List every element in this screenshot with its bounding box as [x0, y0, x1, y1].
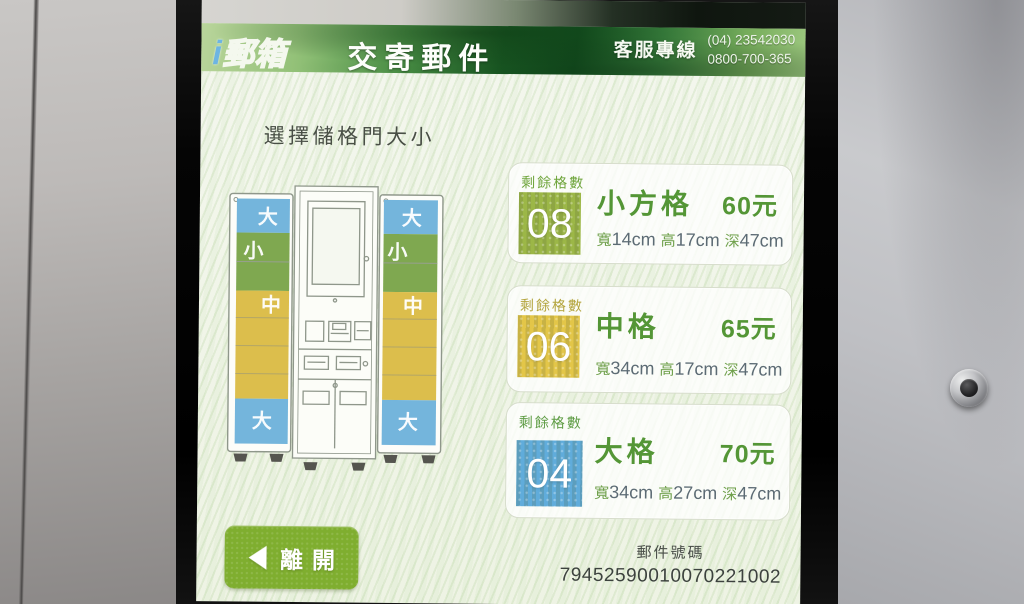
cabinet-left-panel — [0, 0, 178, 604]
dim-height-value: 17cm — [676, 230, 720, 250]
dim-height-value: 27cm — [673, 483, 717, 503]
mail-number-label: 郵件號碼 — [546, 540, 796, 563]
option-dimensions: 寬14cm高17cm深47cm — [597, 229, 789, 252]
hotline-label: 客服專線 — [613, 35, 697, 63]
band-label-large-bottom: 大 — [398, 411, 418, 434]
dim-width-value: 34cm — [610, 358, 654, 378]
option-title-row: 小方格 60元 — [597, 182, 778, 224]
back-arrow-icon — [248, 545, 266, 569]
panel-seam — [18, 0, 39, 604]
locker-diagram: 大 小 中 大 — [225, 181, 446, 473]
dim-depth-label: 深 — [723, 362, 738, 379]
dim-width-label: 寬 — [594, 485, 609, 502]
kiosk-photo: i郵箱 交寄郵件 客服專線 (04) 23542030 0800-700-365… — [0, 0, 1024, 604]
band-label-large-top: 大 — [402, 207, 422, 230]
page-title: 交寄郵件 — [347, 33, 495, 78]
option-name: 小方格 — [597, 182, 693, 223]
option-price: 70元 — [720, 434, 776, 471]
dim-height-value: 17cm — [674, 359, 718, 379]
size-option-large[interactable]: 剩餘格數 04 大格 70元 寬34cm高27cm深47cm — [505, 402, 791, 521]
option-dimensions: 寬34cm高17cm深47cm — [595, 358, 787, 381]
keyhole — [960, 379, 978, 397]
logo-text: 郵箱 — [223, 36, 287, 72]
dim-depth-value: 47cm — [740, 230, 784, 250]
dim-height-label: 高 — [661, 233, 676, 250]
dim-height-label: 高 — [658, 486, 673, 503]
size-option-medium[interactable]: 剩餘格數 06 中格 65元 寬34cm高17cm深47cm — [506, 285, 792, 395]
touch-screen: i郵箱 交寄郵件 客服專線 (04) 23542030 0800-700-365… — [196, 0, 806, 604]
mail-number-value: 79452590010070221002 — [545, 564, 795, 588]
cabinet-lock — [950, 369, 988, 407]
dim-width-label: 寬 — [595, 361, 610, 378]
dim-depth-value: 47cm — [738, 359, 782, 379]
dim-width-label: 寬 — [597, 232, 612, 249]
band-label-medium: 中 — [261, 293, 281, 317]
band-label-small: 小 — [243, 240, 263, 263]
dim-height-label: 高 — [659, 362, 674, 379]
mail-number-block: 郵件號碼 79452590010070221002 — [545, 540, 795, 588]
option-name: 大格 — [594, 430, 658, 471]
dim-depth-value: 47cm — [737, 483, 781, 503]
remaining-count-badge: 04 — [516, 440, 583, 507]
option-price: 60元 — [722, 186, 778, 223]
cabinet-right-panel — [838, 0, 1024, 604]
hotline: 客服專線 (04) 23542030 0800-700-365 — [613, 30, 795, 70]
band-label-medium: 中 — [403, 294, 423, 318]
exit-button-label: 離開 — [280, 540, 344, 575]
remaining-count-badge: 08 — [518, 192, 581, 255]
hotline-number-2: 0800-700-365 — [708, 50, 796, 70]
locker-right-column: 大 小 中 大 — [377, 195, 443, 464]
header-bar: i郵箱 交寄郵件 客服專線 (04) 23542030 0800-700-365 — [201, 23, 805, 77]
hotline-numbers: (04) 23542030 0800-700-365 — [707, 31, 795, 69]
option-title-row: 中格 65元 — [596, 305, 777, 347]
dim-width-value: 34cm — [609, 482, 653, 502]
kiosk-console — [292, 186, 378, 471]
band-label-large-top: 大 — [258, 206, 278, 229]
hotline-number-1: (04) 23542030 — [707, 31, 795, 51]
size-option-small[interactable]: 剩餘格數 08 小方格 60元 寬14cm高17cm深47cm — [507, 162, 793, 266]
option-title-row: 大格 70元 — [594, 430, 775, 472]
dim-depth-label: 深 — [722, 486, 737, 503]
remaining-count-badge: 06 — [517, 315, 580, 378]
band-label-small: 小 — [387, 241, 407, 264]
locker-left-column: 大 小 中 大 — [227, 193, 293, 462]
remaining-count-label: 剩餘格數 — [520, 295, 584, 316]
option-dimensions: 寬34cm高27cm深47cm — [594, 482, 786, 505]
option-name: 中格 — [596, 305, 660, 346]
ipostbox-logo: i郵箱 — [212, 28, 287, 74]
band-label-large-bottom: 大 — [252, 410, 272, 433]
exit-button[interactable]: 離開 — [224, 525, 359, 589]
dim-width-value: 14cm — [612, 229, 656, 249]
remaining-count-label: 剩餘格數 — [519, 412, 583, 433]
option-price: 65元 — [721, 309, 777, 346]
dim-depth-label: 深 — [725, 233, 740, 250]
section-heading: 選擇儲格門大小 — [263, 120, 435, 152]
remaining-count-label: 剩餘格數 — [521, 172, 585, 193]
